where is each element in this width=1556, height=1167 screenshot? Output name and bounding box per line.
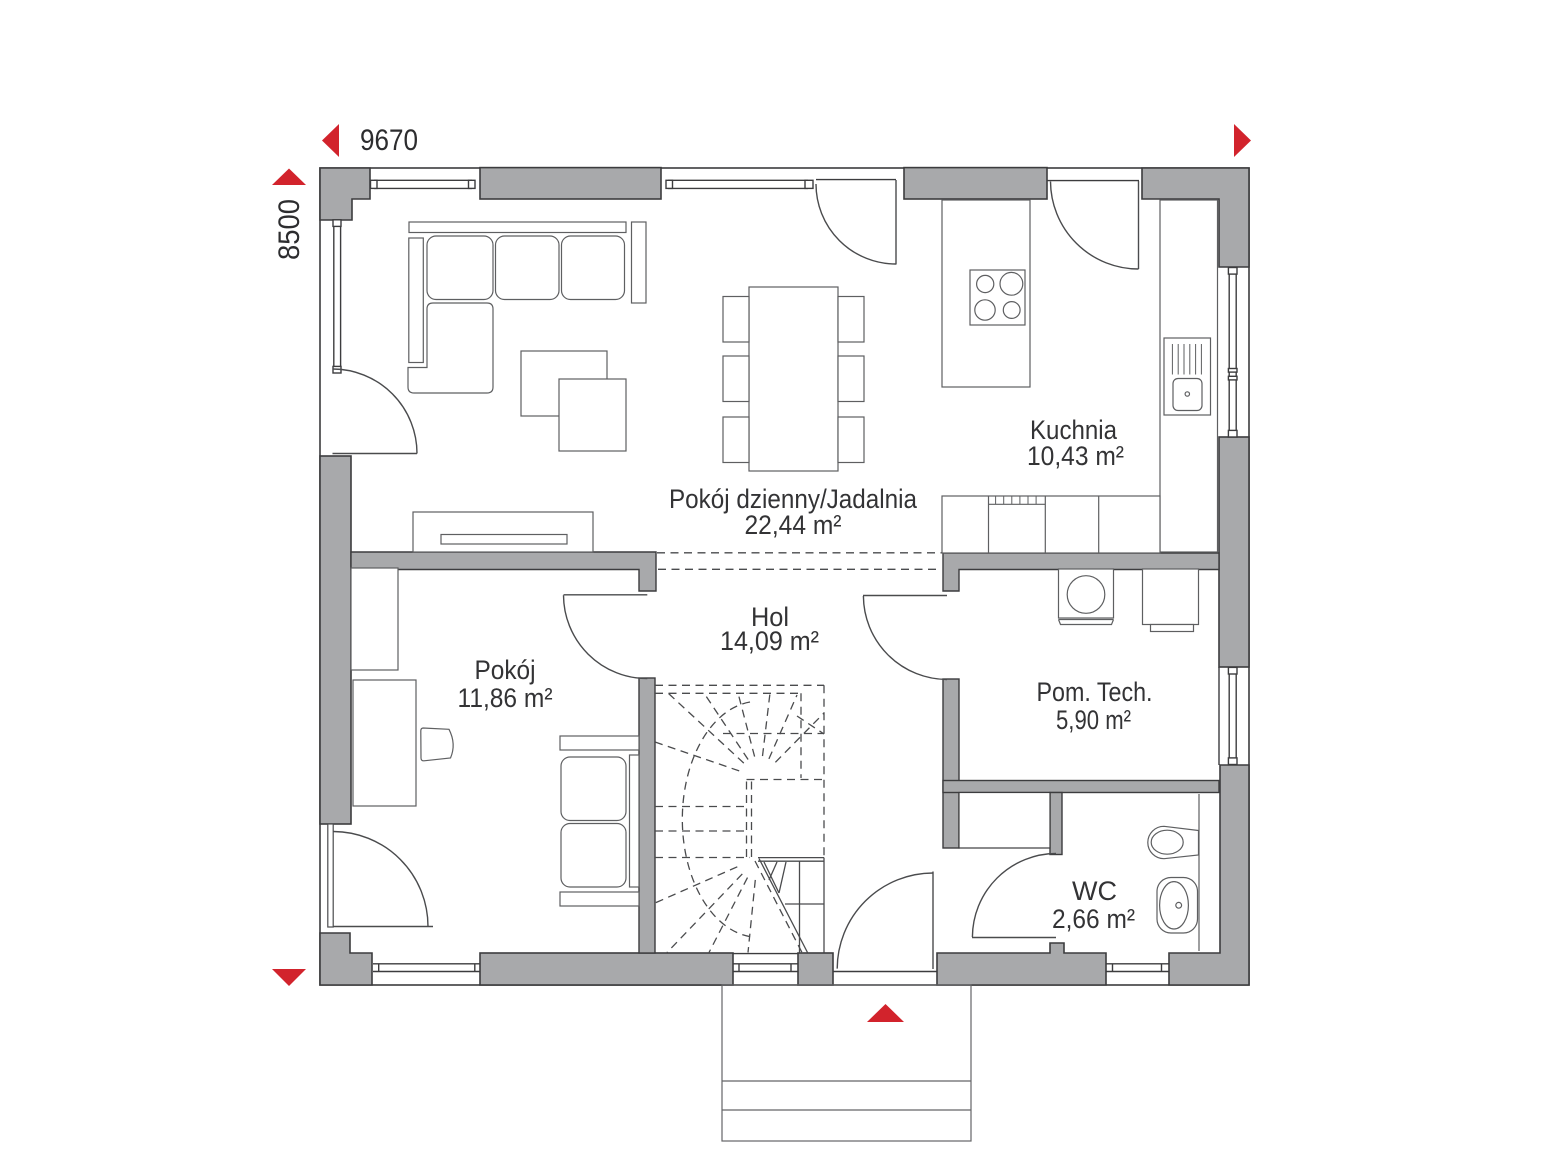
- svg-text:11,86 m²: 11,86 m²: [458, 683, 553, 713]
- svg-text:2,66 m²: 2,66 m²: [1052, 904, 1135, 934]
- svg-text:WC: WC: [1072, 876, 1117, 906]
- svg-text:Pom. Tech.: Pom. Tech.: [1037, 677, 1153, 707]
- svg-text:14,09 m²: 14,09 m²: [720, 626, 819, 656]
- svg-text:9670: 9670: [360, 124, 418, 157]
- svg-text:10,43 m²: 10,43 m²: [1027, 441, 1124, 471]
- svg-text:8500: 8500: [273, 199, 306, 260]
- svg-text:Pokój: Pokój: [475, 655, 536, 685]
- svg-text:5,90 m²: 5,90 m²: [1056, 705, 1131, 735]
- svg-text:22,44 m²: 22,44 m²: [745, 510, 842, 540]
